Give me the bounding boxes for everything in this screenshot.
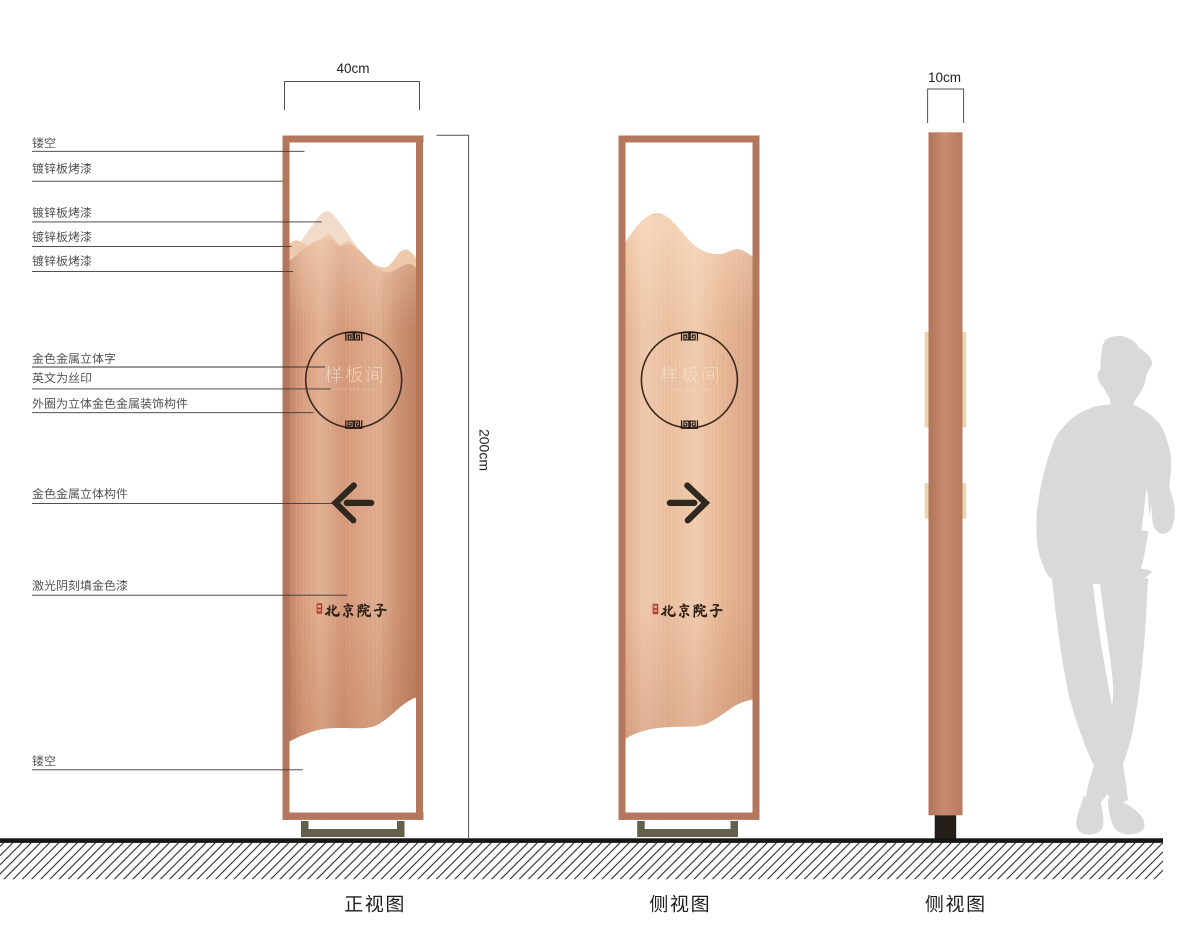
svg-text:YANG BAN JIAN: YANG BAN JIAN bbox=[667, 387, 711, 392]
svg-text:200cm: 200cm bbox=[477, 429, 493, 471]
svg-text:YANG BAN JIAN: YANG BAN JIAN bbox=[332, 387, 376, 392]
svg-text:10cm: 10cm bbox=[928, 70, 961, 85]
svg-text:40cm: 40cm bbox=[336, 61, 369, 76]
